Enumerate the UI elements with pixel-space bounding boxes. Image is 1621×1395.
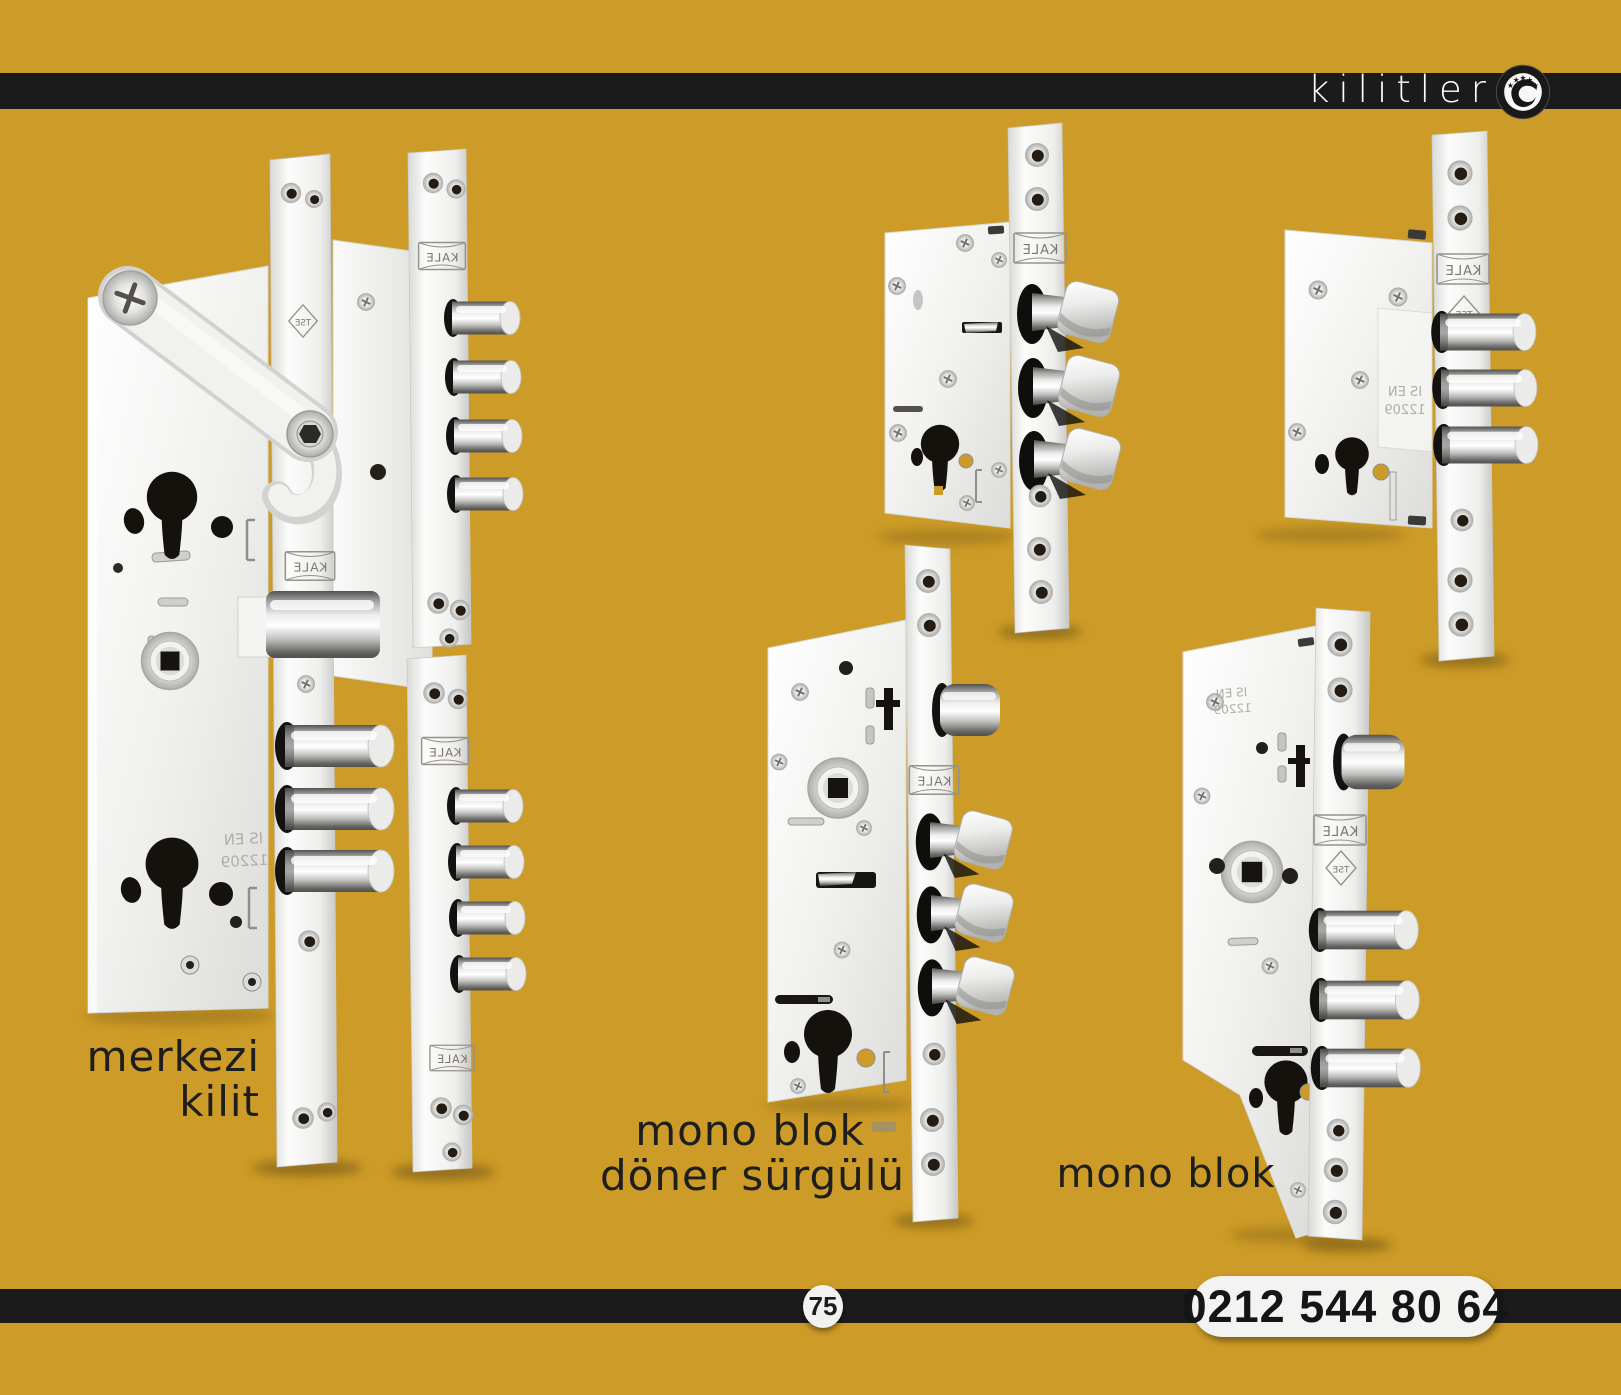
bolt xyxy=(1431,311,1536,353)
product-label-mono-blok-doner-surgulu: mono blok döner sürgülü xyxy=(600,1108,900,1198)
bolt xyxy=(449,899,525,937)
rotating-bolt xyxy=(1017,279,1121,352)
page-number-badge: 75 xyxy=(803,1285,843,1328)
svg-text:12209: 12209 xyxy=(1384,403,1425,418)
rotating-bolt xyxy=(917,882,1016,951)
spindle-hub xyxy=(142,633,199,690)
bolt xyxy=(1432,367,1537,409)
bolt xyxy=(447,787,523,825)
center-bolts xyxy=(275,722,394,895)
lock-body: IS EN 12209 xyxy=(1183,626,1316,1238)
bolt xyxy=(1309,908,1418,952)
latch-bolt xyxy=(1333,734,1404,791)
rotating-bolt xyxy=(1018,353,1122,426)
label-line: döner sürgülü xyxy=(600,1153,900,1198)
lock-body xyxy=(885,222,1010,528)
label-line: kilit xyxy=(56,1079,260,1124)
faceplate-center xyxy=(270,154,337,1167)
bolt xyxy=(450,955,526,993)
bolt xyxy=(444,299,520,337)
bolt xyxy=(275,785,394,833)
bolt xyxy=(447,475,523,513)
bolt xyxy=(446,417,522,455)
svg-text:IS EN: IS EN xyxy=(1215,685,1247,701)
bolt xyxy=(275,847,394,895)
spindle-hub xyxy=(1221,841,1282,902)
faceplate xyxy=(1431,131,1538,661)
label-line: merkezi xyxy=(56,1034,260,1079)
bolt xyxy=(1311,1046,1420,1090)
svg-text:IS EN: IS EN xyxy=(223,829,263,849)
faceplate xyxy=(1008,123,1123,633)
latch-bolt xyxy=(932,683,1000,737)
lock-body xyxy=(768,620,906,1102)
rotating-bolt xyxy=(916,809,1015,878)
catalog-page: kilitler ★ ★ ★ ★ ★ xyxy=(0,0,1621,1395)
bolt xyxy=(275,722,394,770)
lock-merkezi-kilit-photo: IS EN 12209 xyxy=(85,149,526,1180)
product-label-mono-blok: mono blok xyxy=(1046,1152,1286,1197)
lock-mono-blok-top-photo: IS EN 12209 xyxy=(1255,131,1538,667)
bolt xyxy=(448,843,524,881)
rotating-bolt xyxy=(918,955,1017,1024)
product-label-merkezi-kilit: merkezi kilit xyxy=(56,1034,260,1124)
lock-body: IS EN 12209 xyxy=(1285,229,1432,528)
svg-text:IS EN: IS EN xyxy=(1388,385,1422,400)
deadbolt-block xyxy=(238,591,380,658)
svg-text:12209: 12209 xyxy=(1213,701,1252,718)
label-line: mono blok xyxy=(1046,1152,1286,1197)
svg-text:12209: 12209 xyxy=(220,851,269,871)
faceplate xyxy=(1308,608,1420,1240)
label-line: mono blok xyxy=(600,1108,900,1153)
bolt xyxy=(445,358,521,396)
bolt xyxy=(1310,978,1419,1022)
bolt xyxy=(1433,424,1538,466)
spindle-hub xyxy=(808,758,868,818)
faceplate-bottom-right xyxy=(407,655,526,1172)
faceplate-top-right xyxy=(408,149,523,648)
phone-badge: 0212 544 80 64 xyxy=(1192,1276,1498,1337)
